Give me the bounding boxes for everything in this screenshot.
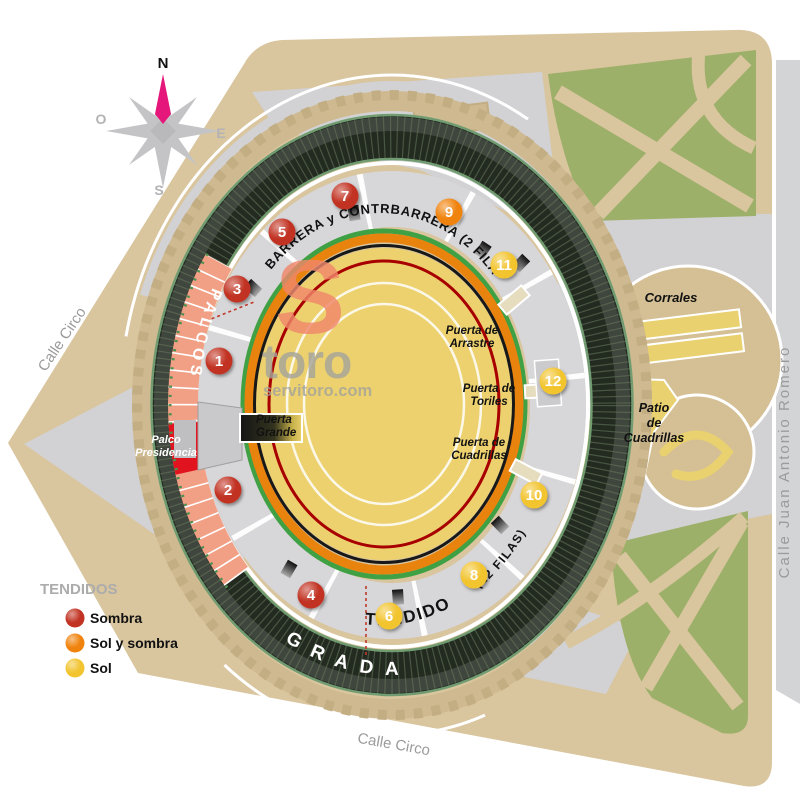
section-marker-6[interactable]: 6 [376,603,403,630]
svg-text:Arrastre: Arrastre [449,338,495,350]
svg-text:Cuadrillas: Cuadrillas [624,431,684,445]
logo-domain: servitoro.com [263,382,372,400]
svg-text:1: 1 [215,353,223,370]
puerta-cuadrillas-label: Puerta de Cuadrillas [451,437,507,462]
svg-text:4: 4 [307,587,316,604]
street-label-calle-juan-antonio-romero: Calle Juan Antonio Romero [776,346,793,579]
section-marker-8[interactable]: 8 [461,562,488,589]
map-canvas: S toro servitoro.com PALCOS G R A D A S [0,0,800,800]
svg-text:5: 5 [278,224,286,241]
legend-item-sol-y-sombra: Sol y sombra [66,634,179,653]
legend-title: TENDIDOS [40,581,118,598]
svg-text:Presidencia: Presidencia [135,447,197,459]
compass-o-label: O [96,111,107,127]
legend-item-sol: Sol [66,659,112,678]
svg-text:Grande: Grande [256,427,297,439]
svg-text:Puerta de: Puerta de [463,383,516,395]
section-marker-3[interactable]: 3 [224,276,251,303]
svg-text:9: 9 [445,204,453,221]
svg-text:Sombra: Sombra [90,610,142,626]
svg-text:Sol: Sol [90,660,112,676]
svg-text:Palco: Palco [151,434,181,446]
puerta-arrastre-label: Puerta de Arrastre [446,325,499,350]
svg-text:Patio: Patio [639,401,670,415]
section-marker-2[interactable]: 2 [215,477,242,504]
svg-text:Puerta de: Puerta de [446,325,499,337]
section-marker-9[interactable]: 9 [436,199,463,226]
svg-text:2: 2 [224,482,232,499]
compass-n-label: N [158,55,169,72]
compass-needle-north [155,74,171,124]
svg-text:Puerta de: Puerta de [453,437,506,449]
section-marker-11[interactable]: 11 [491,252,518,279]
bullring-seating-map: S toro servitoro.com PALCOS G R A D A S [0,0,800,800]
svg-text:de: de [647,416,662,430]
svg-text:Cuadrillas: Cuadrillas [451,450,507,462]
section-marker-5[interactable]: 5 [269,219,296,246]
compass-s-label: S [154,182,163,198]
section-marker-10[interactable]: 10 [521,482,548,509]
svg-text:Sol y sombra: Sol y sombra [90,635,178,651]
section-marker-1[interactable]: 1 [206,348,233,375]
svg-text:8: 8 [470,567,478,584]
legend-item-sombra: Sombra [66,609,143,628]
puerta-grande-label: Puerta Grande [256,414,297,439]
svg-text:Toriles: Toriles [470,396,507,408]
svg-text:12: 12 [545,373,562,390]
svg-text:Puerta: Puerta [256,414,292,426]
svg-text:10: 10 [526,487,543,504]
compass-e-label: E [216,125,225,141]
svg-text:11: 11 [496,257,512,274]
section-marker-12[interactable]: 12 [540,368,567,395]
section-marker-4[interactable]: 4 [298,582,325,609]
svg-text:7: 7 [341,188,349,205]
svg-text:3: 3 [233,281,241,298]
svg-text:6: 6 [385,608,393,625]
corrales-label: Corrales [645,290,698,305]
section-marker-7[interactable]: 7 [332,183,359,210]
